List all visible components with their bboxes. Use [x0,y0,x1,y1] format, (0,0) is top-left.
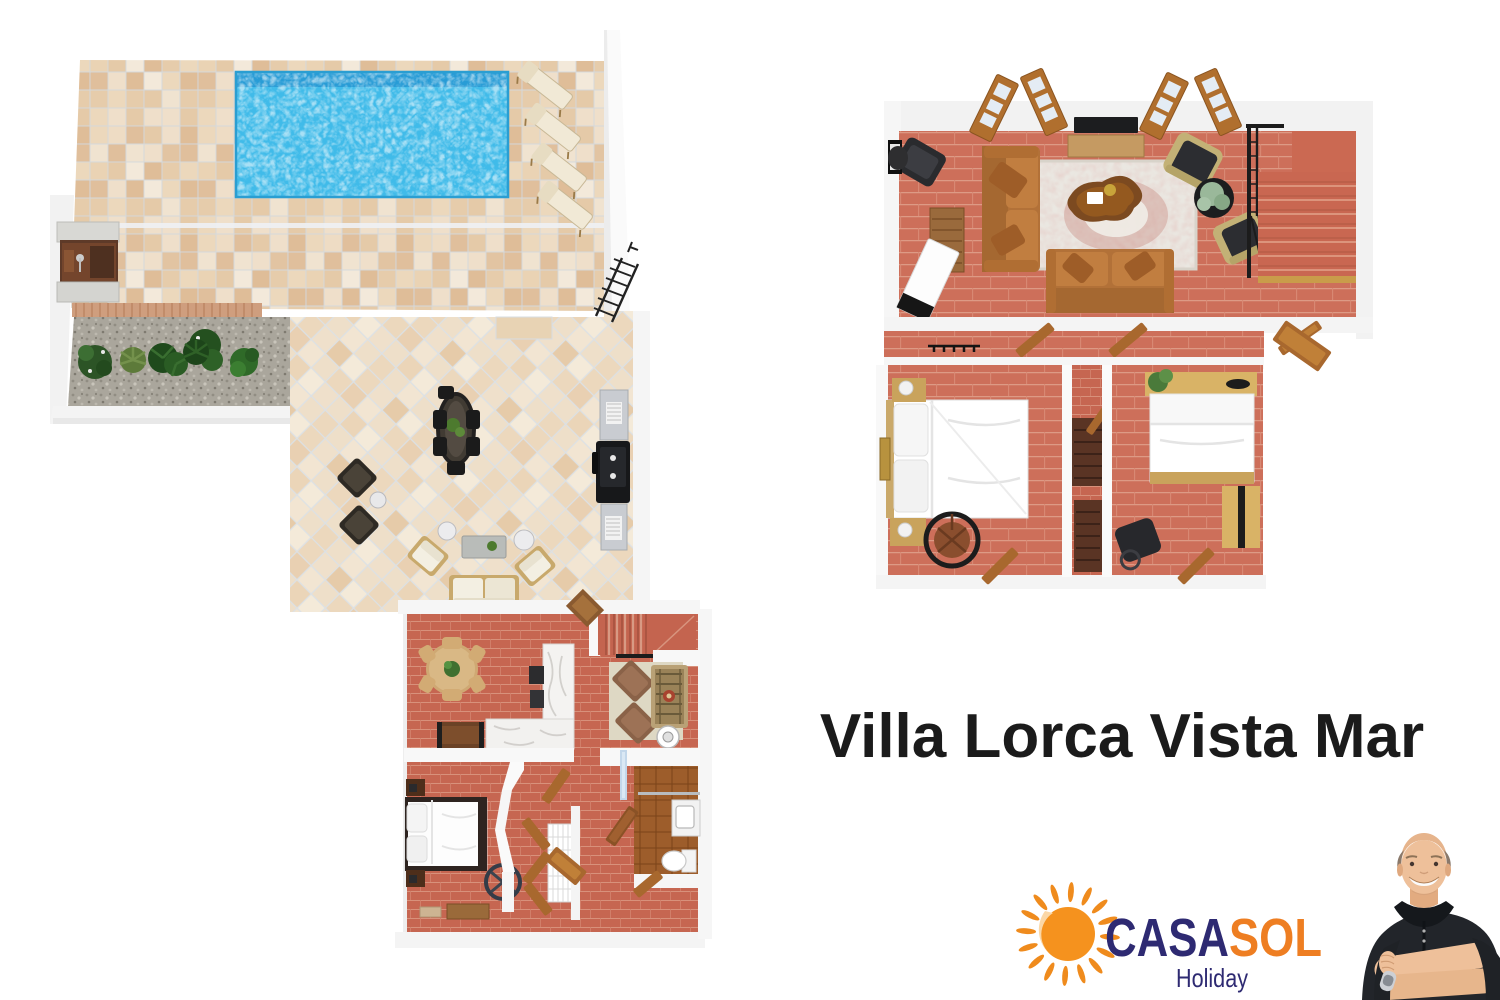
svg-text:CASA: CASA [1105,908,1229,968]
svg-text:Villa Lorca Vista Mar: Villa Lorca Vista Mar [820,702,1424,771]
svg-text:Holiday: Holiday [1176,963,1248,993]
svg-text:SOL: SOL [1229,908,1322,968]
